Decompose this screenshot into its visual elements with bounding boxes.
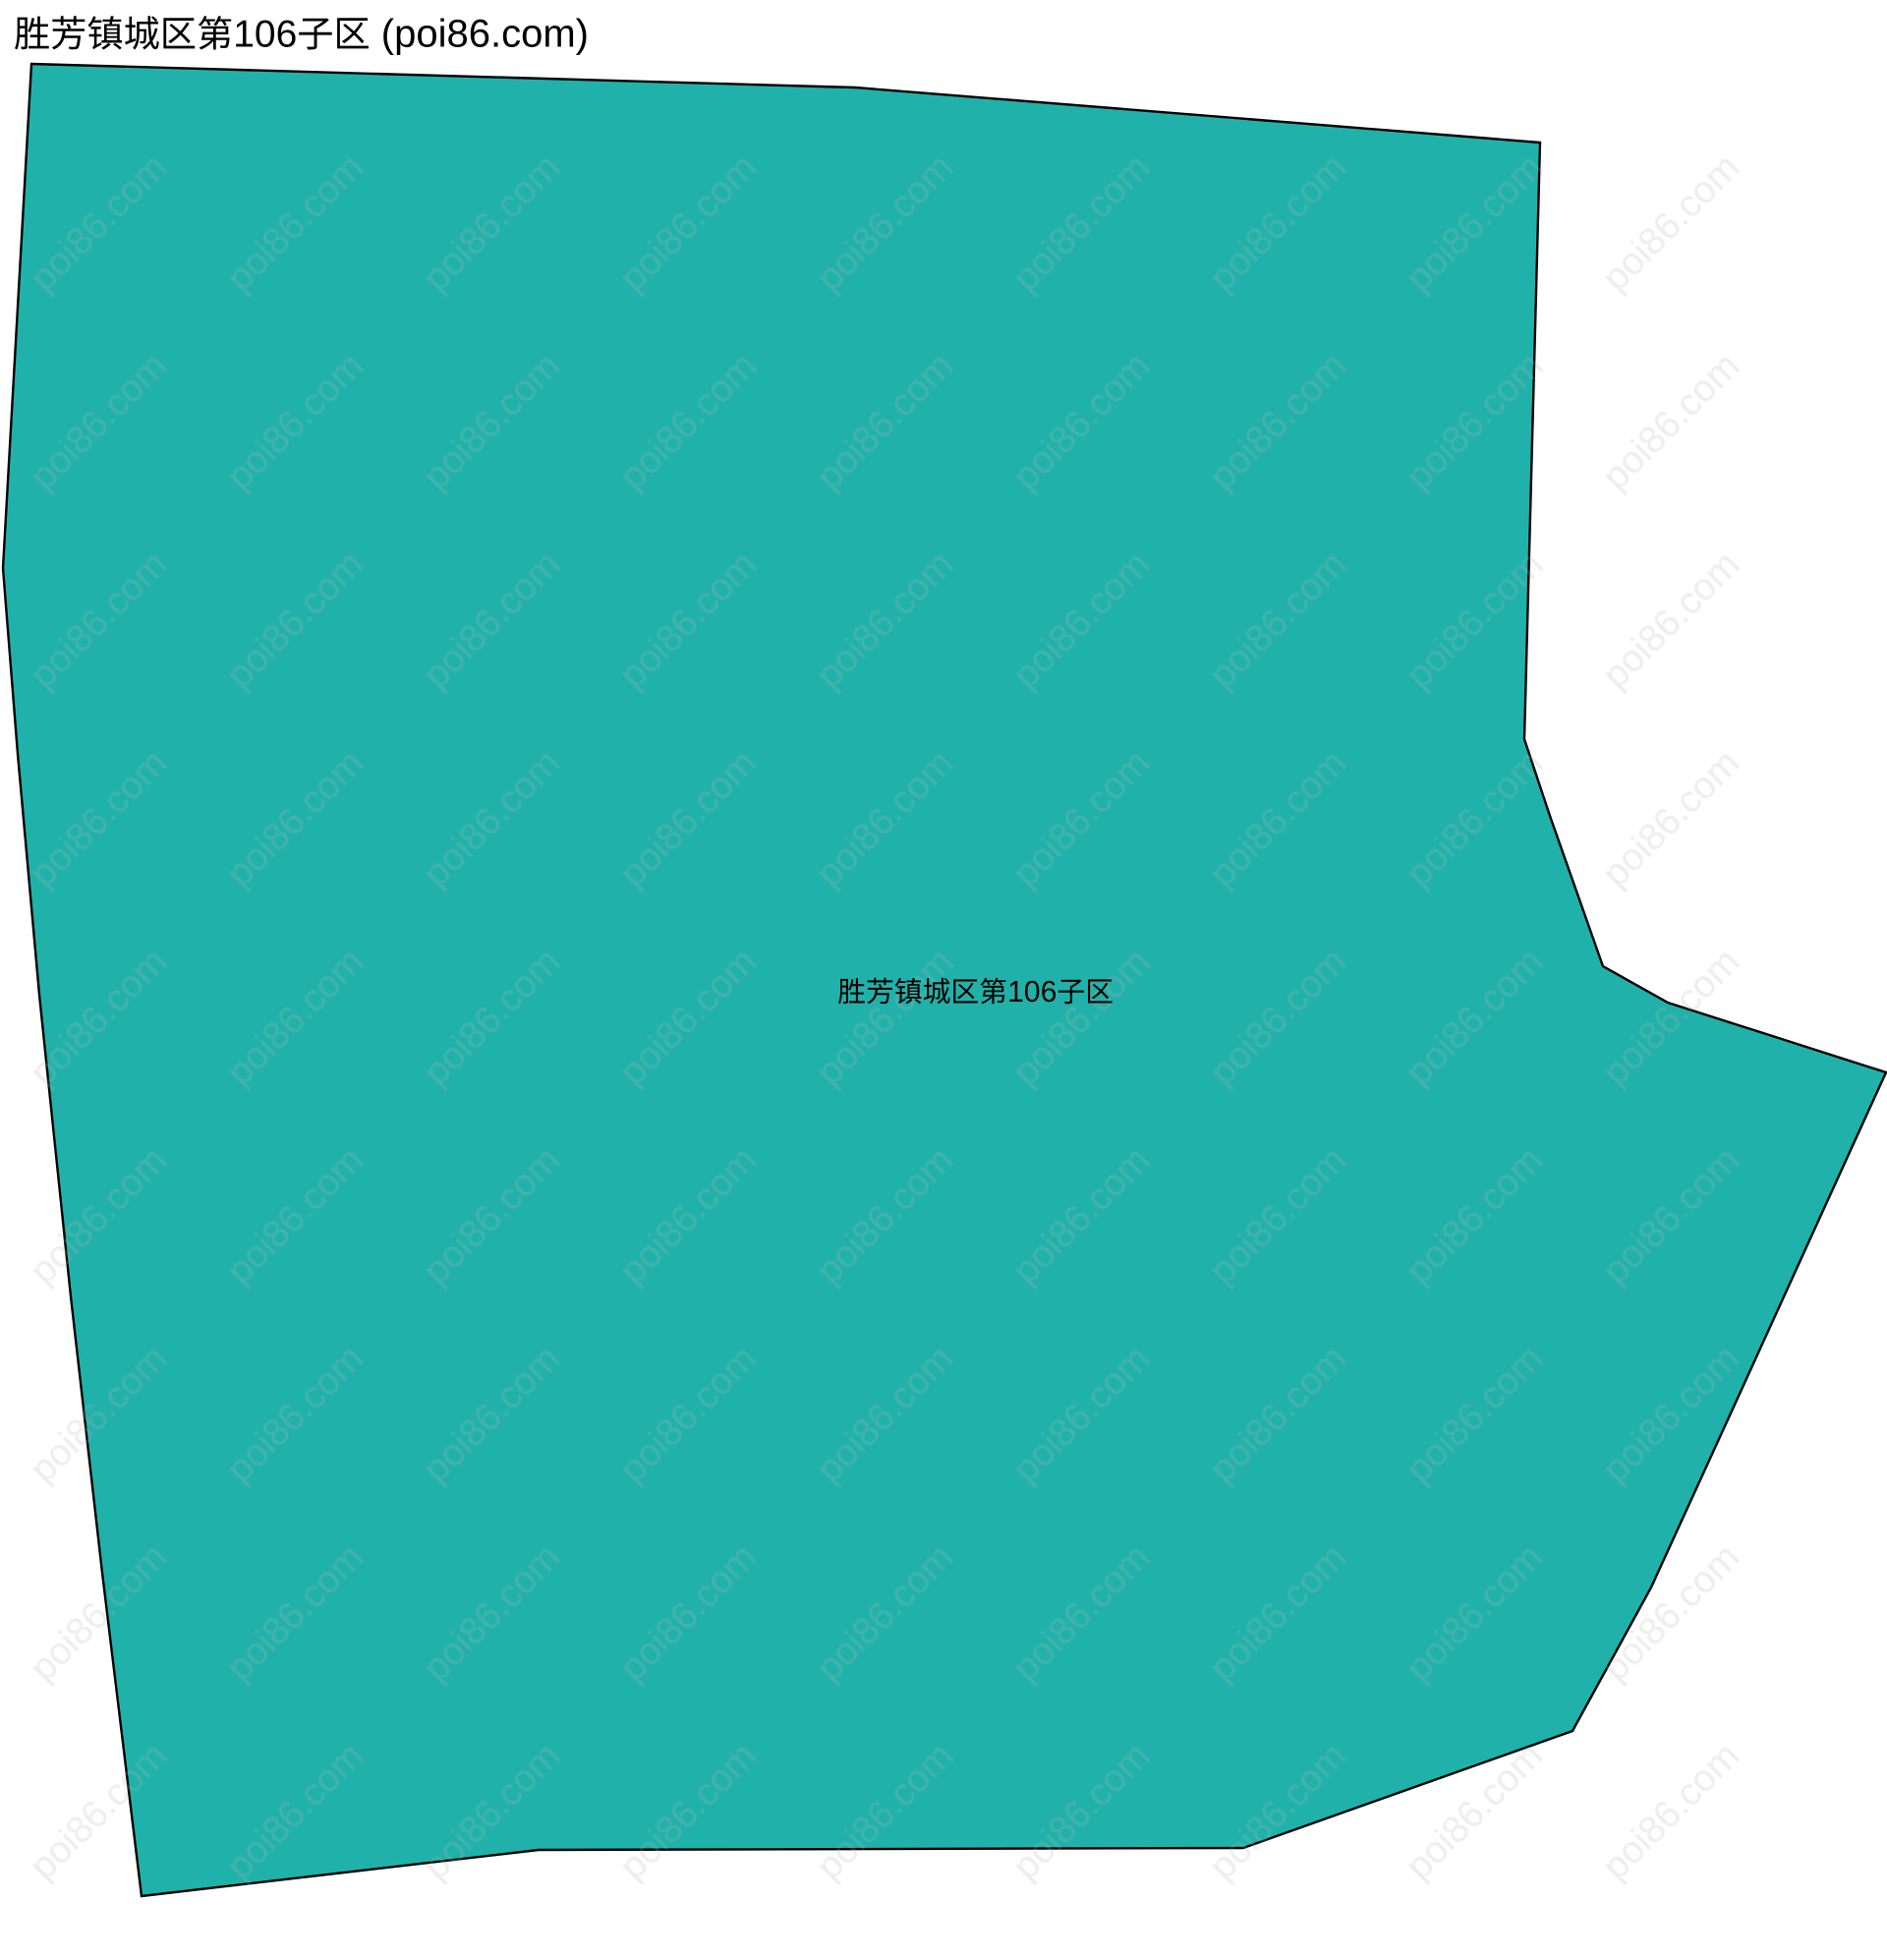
svg-text:(poi86.com): (poi86.com) xyxy=(371,13,589,56)
svg-text:106: 106 xyxy=(233,14,297,56)
svg-text:106: 106 xyxy=(1007,976,1057,1009)
